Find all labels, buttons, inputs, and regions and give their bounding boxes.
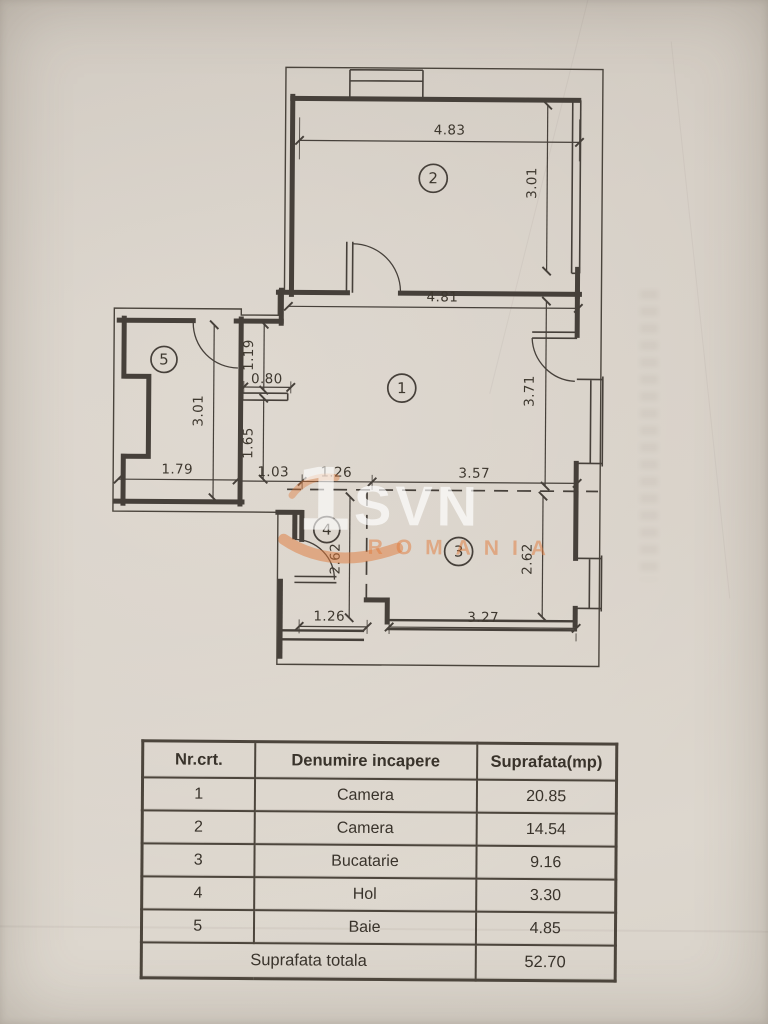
row4-name: Hol: [254, 877, 476, 912]
dim-hall-height: 2.62: [327, 543, 343, 575]
dim-room1-height: 3.71: [522, 375, 538, 407]
top-shaft: [350, 70, 423, 98]
dim-entry-width: 1.03: [257, 464, 289, 480]
table-header-row: Nr.crt. Denumire incapere Suprafata(mp): [143, 741, 617, 781]
table-row: 5 Baie 4.85: [141, 909, 615, 945]
dim-hall-bottom-width: 1.26: [313, 609, 345, 625]
total-value: 52.70: [475, 945, 615, 981]
row3-area: 9.16: [476, 846, 616, 880]
table-row: 2 Camera 14.54: [142, 810, 616, 846]
row1-nr: 1: [142, 777, 254, 811]
dim-entry-height: 1.65: [240, 427, 256, 459]
dim-shelf-width: 0.80: [251, 371, 283, 387]
row2-nr: 2: [142, 810, 254, 844]
room-label-bucatarie: 3: [454, 542, 464, 560]
row1-name: Camera: [254, 778, 476, 813]
door-room2: [346, 242, 400, 293]
dimension-texts: 4.83 3.01 4.81 3.71 1.19 0.80 1.65 1.03 …: [160, 120, 540, 626]
dim-bath-width: 1.79: [161, 461, 193, 477]
dim-hall-top-width: 1.26: [320, 465, 352, 481]
header-denumire: Denumire incapere: [255, 742, 477, 780]
dim-room1-width: 4.81: [427, 289, 459, 305]
row4-nr: 4: [142, 876, 254, 910]
dimension-lines: [117, 102, 580, 628]
table-total-row: Suprafata totala 52.70: [141, 942, 615, 981]
row4-area: 3.30: [476, 879, 616, 913]
dim-bath-height: 3.01: [191, 395, 207, 427]
row2-name: Camera: [254, 811, 476, 846]
header-nr-crt: Nr.crt.: [143, 741, 255, 778]
door-balcony: [532, 332, 577, 381]
walls: [115, 95, 581, 658]
dim-room2-height: 3.01: [524, 167, 540, 199]
room-label-hol: 4: [322, 521, 332, 539]
room-numbers: [150, 162, 476, 565]
row2-area: 14.54: [476, 813, 616, 847]
row5-nr: 5: [141, 909, 253, 943]
table-row: 3 Bucatarie 9.16: [142, 843, 616, 879]
dim-kitchen-width: 3.27: [467, 610, 499, 626]
dim-niche-height: 1.19: [241, 339, 257, 371]
room-label-baie: 5: [159, 350, 169, 368]
table-row: 1 Camera 20.85: [142, 777, 616, 813]
dim-room2-width: 4.83: [434, 122, 466, 138]
dim-room1-bottom: 3.57: [458, 466, 490, 482]
table-row: 4 Hol 3.30: [142, 876, 616, 912]
header-suprafata: Suprafata(mp): [477, 743, 617, 780]
area-table: Nr.crt. Denumire incapere Suprafata(mp) …: [140, 739, 619, 982]
row3-name: Bucatarie: [254, 844, 476, 879]
room-label-camera2: 2: [428, 169, 438, 187]
row5-area: 4.85: [475, 912, 615, 946]
row1-area: 20.85: [476, 780, 616, 814]
scanned-floor-plan-page: 4.83 3.01 4.81 3.71 1.19 0.80 1.65 1.03 …: [0, 0, 768, 1024]
door-bath: [193, 323, 238, 368]
shelf: [243, 393, 288, 400]
exterior-contour: [112, 66, 603, 666]
window-kitchen: [575, 555, 601, 611]
window-room1: [576, 376, 603, 466]
total-label: Suprafata totala: [141, 942, 475, 980]
dim-kitchen-height: 2.62: [519, 543, 535, 575]
room-label-camera1: 1: [397, 379, 407, 397]
row5-name: Baie: [253, 910, 475, 945]
row3-nr: 3: [142, 843, 254, 877]
